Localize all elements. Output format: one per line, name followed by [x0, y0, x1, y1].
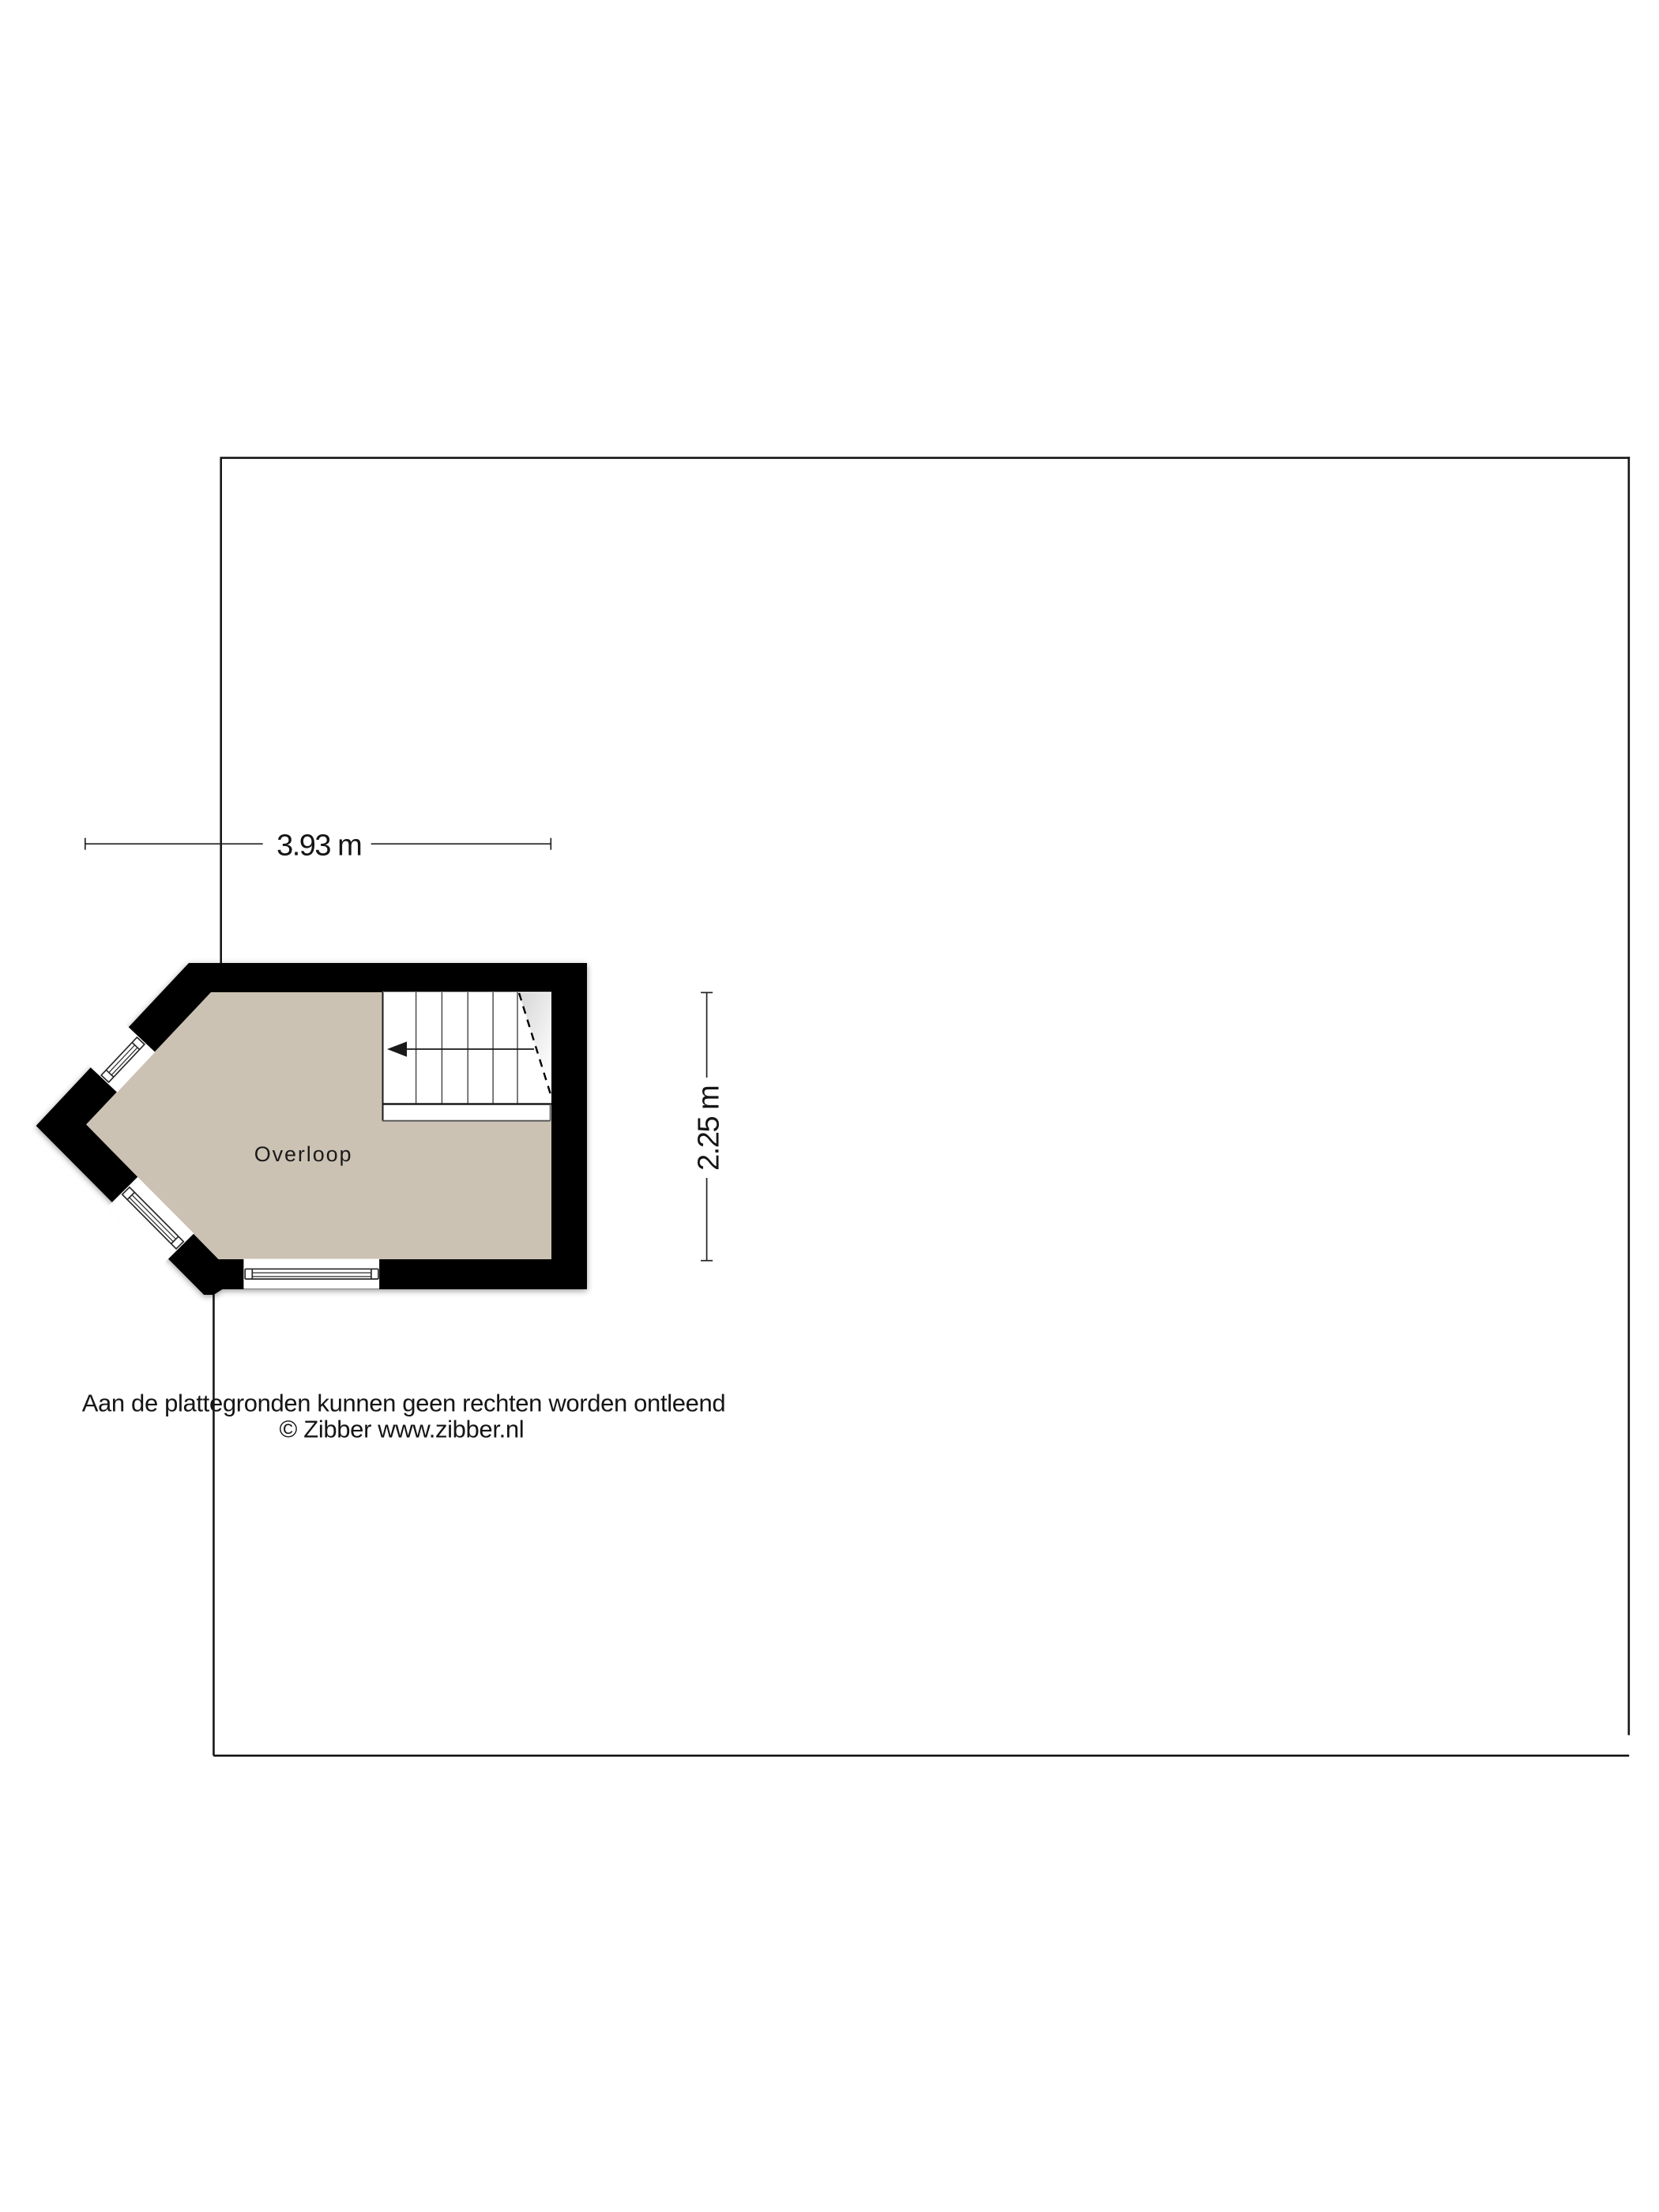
svg-text:Overloop: Overloop	[254, 1142, 353, 1166]
svg-text:© Zibber www.zibber.nl: © Zibber www.zibber.nl	[280, 1416, 525, 1443]
svg-text:3.93 m: 3.93 m	[276, 829, 361, 862]
svg-text:2.25 m: 2.25 m	[692, 1086, 725, 1171]
svg-text:Aan de plattegronden kunnen ge: Aan de plattegronden kunnen geen rechten…	[82, 1390, 726, 1417]
